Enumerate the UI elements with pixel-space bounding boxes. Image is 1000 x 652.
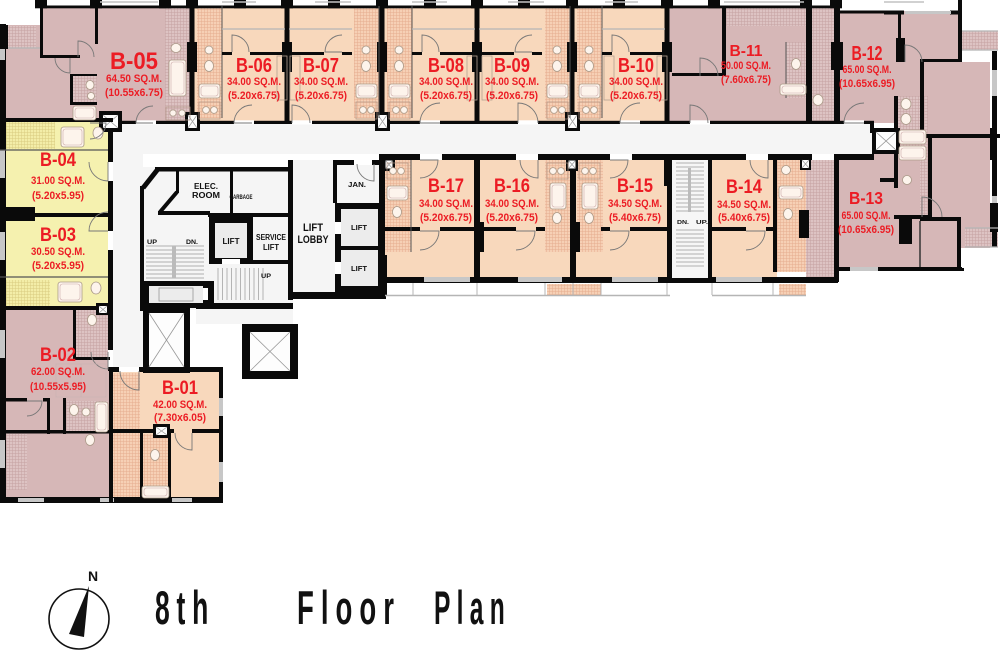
svg-text:50.00 SQ.M.: 50.00 SQ.M. [721,60,771,72]
svg-text:B-04: B-04 [40,150,76,171]
svg-text:(10.55x6.75): (10.55x6.75) [105,87,163,99]
svg-text:UP.: UP. [696,220,709,226]
svg-text:DN.: DN. [677,220,690,226]
svg-text:GARBAGE: GARBAGE [230,195,253,201]
svg-text:N: N [88,568,98,584]
svg-text:34.00 SQ.M.: 34.00 SQ.M. [227,76,281,88]
svg-text:34.00 SQ.M.: 34.00 SQ.M. [419,76,473,88]
svg-text:(5.40x6.75): (5.40x6.75) [609,212,661,224]
svg-text:8th: 8th [155,581,215,634]
svg-text:B-10: B-10 [618,54,654,77]
svg-text:SERVICE: SERVICE [256,233,287,242]
svg-text:34.00 SQ.M.: 34.00 SQ.M. [294,76,348,88]
svg-text:LIFT: LIFT [351,264,367,273]
svg-text:Plan: Plan [434,581,511,634]
svg-text:(5.40x6.75): (5.40x6.75) [718,212,770,224]
svg-text:DN.: DN. [186,240,198,246]
svg-text:B-09: B-09 [494,54,530,77]
svg-text:ROOM: ROOM [192,191,220,200]
svg-text:(5.20x6.75): (5.20x6.75) [486,212,538,224]
svg-text:30.50 SQ.M.: 30.50 SQ.M. [31,246,85,258]
svg-text:ELEC.: ELEC. [194,182,218,191]
svg-text:B-17: B-17 [428,176,464,197]
svg-text:B-03: B-03 [40,225,76,246]
svg-text:62.00 SQ.M.: 62.00 SQ.M. [31,366,85,378]
svg-text:34.00 SQ.M.: 34.00 SQ.M. [609,76,663,88]
svg-text:LOBBY: LOBBY [298,234,330,246]
svg-text:B-01: B-01 [162,378,198,399]
svg-text:B-12: B-12 [852,43,883,65]
svg-text:(5.20x5.95): (5.20x5.95) [32,190,84,202]
svg-text:(5.20x6.75): (5.20x6.75) [228,90,280,102]
svg-text:UP: UP [147,240,157,246]
svg-text:B-07: B-07 [303,54,339,77]
svg-text:31.00 SQ.M.: 31.00 SQ.M. [31,175,85,187]
svg-text:(5.20x6.75): (5.20x6.75) [420,212,472,224]
svg-text:B-06: B-06 [236,54,272,77]
svg-text:LIFT: LIFT [351,223,367,232]
svg-text:B-14: B-14 [726,177,762,198]
svg-text:B-13: B-13 [849,188,883,208]
svg-text:(5.20x5.95): (5.20x5.95) [32,260,84,272]
svg-text:(7.30x6.05): (7.30x6.05) [154,412,206,424]
svg-text:B-05: B-05 [110,48,158,75]
svg-text:LIFT: LIFT [223,237,240,246]
svg-text:UP: UP [261,274,271,280]
svg-text:(7.60x6.75): (7.60x6.75) [721,74,771,86]
svg-text:B-08: B-08 [428,54,464,77]
svg-text:34.00 SQ.M.: 34.00 SQ.M. [485,198,539,210]
svg-text:(5.20x6.75): (5.20x6.75) [420,90,472,102]
svg-text:(5.20x6.75): (5.20x6.75) [486,90,538,102]
svg-text:LIFT: LIFT [263,243,279,252]
svg-text:(10.65x6.95): (10.65x6.95) [839,78,895,90]
svg-text:B-02: B-02 [40,345,76,366]
svg-text:(10.65x6.95): (10.65x6.95) [838,224,894,236]
svg-text:LIFT: LIFT [303,222,323,234]
svg-text:(5.20x6.75): (5.20x6.75) [295,90,347,102]
svg-text:JAN.: JAN. [348,182,366,189]
svg-text:65.00 SQ.M.: 65.00 SQ.M. [842,210,891,222]
svg-text:Floor: Floor [297,581,401,634]
svg-text:65.00 SQ.M.: 65.00 SQ.M. [843,64,892,76]
svg-text:B-16: B-16 [494,176,530,197]
svg-text:34.00 SQ.M.: 34.00 SQ.M. [419,198,473,210]
svg-text:(10.55x5.95): (10.55x5.95) [30,381,86,393]
svg-text:64.50 SQ.M.: 64.50 SQ.M. [106,73,162,85]
svg-text:B-15: B-15 [617,176,653,197]
svg-text:42.00 SQ.M.: 42.00 SQ.M. [153,399,207,411]
svg-text:34.50 SQ.M.: 34.50 SQ.M. [608,198,662,210]
svg-text:B-11: B-11 [730,43,763,60]
svg-text:34.50 SQ.M.: 34.50 SQ.M. [717,199,771,211]
svg-text:34.00 SQ.M.: 34.00 SQ.M. [485,76,539,88]
svg-text:(5.20x6.75): (5.20x6.75) [610,90,662,102]
